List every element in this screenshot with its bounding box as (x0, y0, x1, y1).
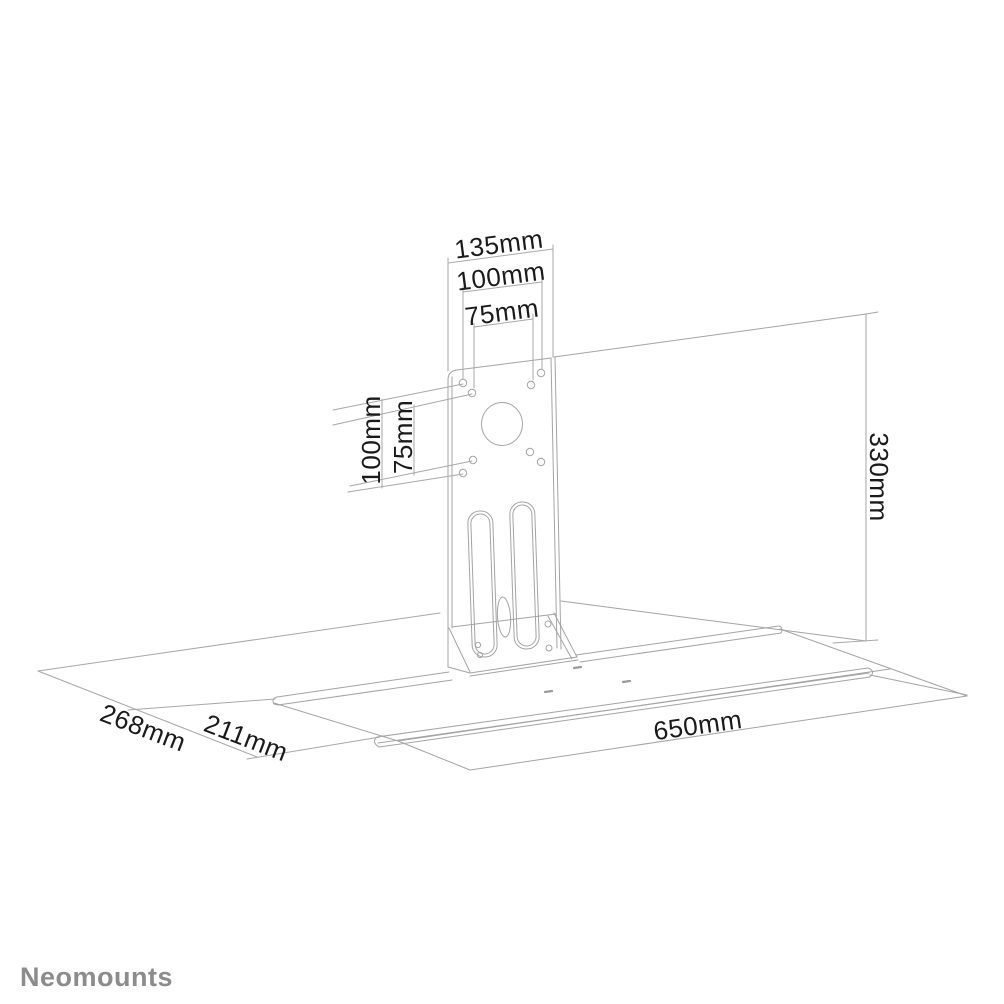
vesa-bracket-plate (448, 357, 578, 676)
monitor-panel-outline (554, 314, 866, 641)
dimension-diagram: 135mm 100mm 75mm 100mm 75mm 330mm 268mm … (0, 0, 1004, 1004)
dim-label-shelf-width: 650mm (651, 704, 744, 746)
dim-label-vesa-horizontal-75: 75mm (463, 292, 540, 331)
dim-label-vesa-vertical-75: 75mm (388, 400, 418, 474)
keyboard-shelf (273, 626, 967, 770)
technical-drawing-page: 135mm 100mm 75mm 100mm 75mm 330mm 268mm … (0, 0, 1004, 1004)
dim-label-depth-shelf: 211mm (200, 708, 292, 767)
dim-label-vesa-vertical-100: 100mm (356, 395, 386, 484)
dim-label-panel-height: 330mm (864, 432, 894, 521)
neomounts-logo: Neomounts (20, 962, 173, 992)
